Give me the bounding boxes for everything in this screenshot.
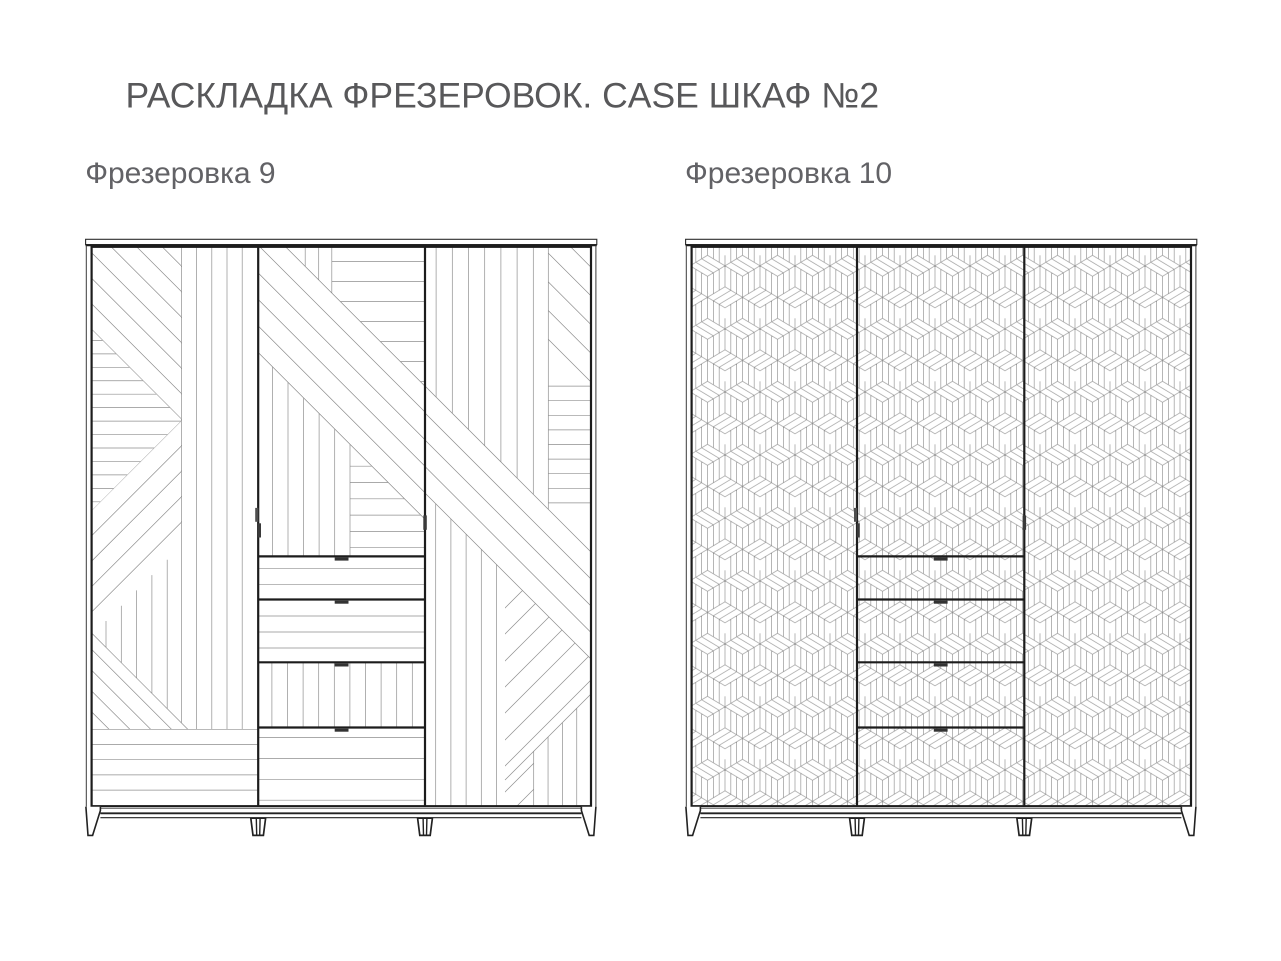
svg-text:РАСКЛАДКА ФРЕЗЕРОВОК. CASE ШКА: РАСКЛАДКА ФРЕЗЕРОВОК. CASE ШКАФ №2 [126,76,880,116]
svg-text:Фрезеровка 10: Фрезеровка 10 [685,157,892,190]
svg-text:Фрезеровка 9: Фрезеровка 9 [85,157,275,190]
